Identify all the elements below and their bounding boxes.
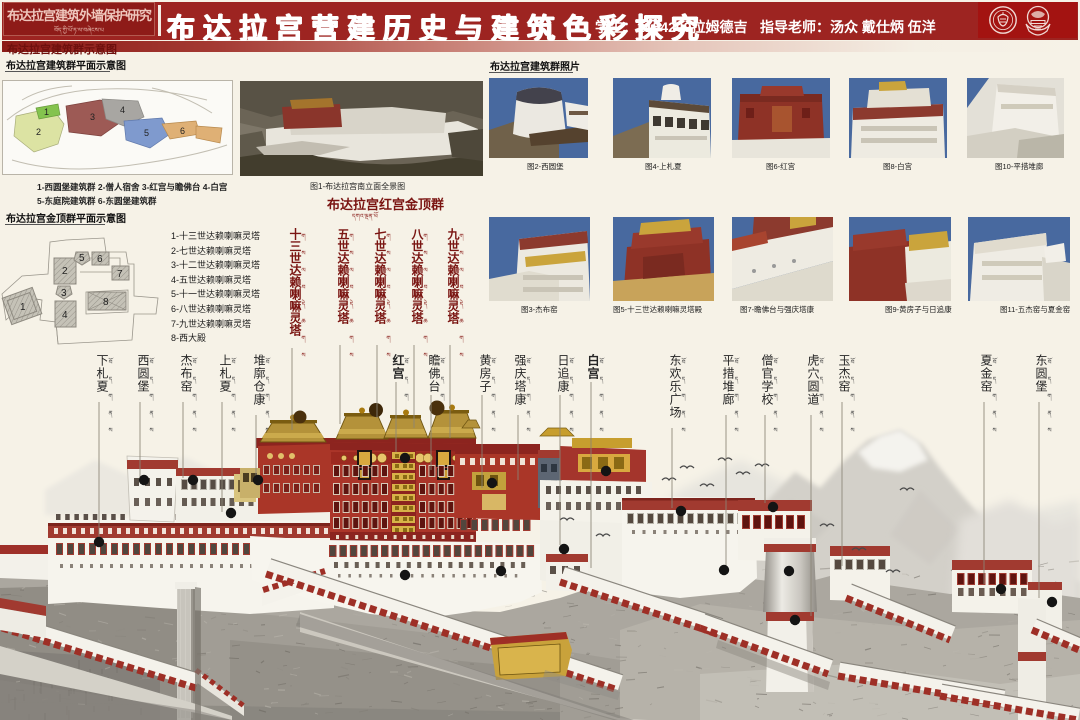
svg-text:1: 1 <box>20 302 26 313</box>
svg-text:5: 5 <box>79 253 85 264</box>
svg-text:6: 6 <box>180 126 185 136</box>
svg-text:4: 4 <box>120 105 125 115</box>
svg-text:4: 4 <box>62 310 68 321</box>
svg-text:3: 3 <box>90 112 95 122</box>
svg-text:3: 3 <box>61 288 67 299</box>
svg-text:2: 2 <box>62 266 68 277</box>
svg-text:6: 6 <box>97 254 103 265</box>
svg-text:1: 1 <box>44 107 49 117</box>
svg-text:7: 7 <box>117 269 123 280</box>
svg-text:8: 8 <box>103 297 109 308</box>
svg-text:5: 5 <box>144 128 149 138</box>
svg-text:2: 2 <box>36 127 41 137</box>
